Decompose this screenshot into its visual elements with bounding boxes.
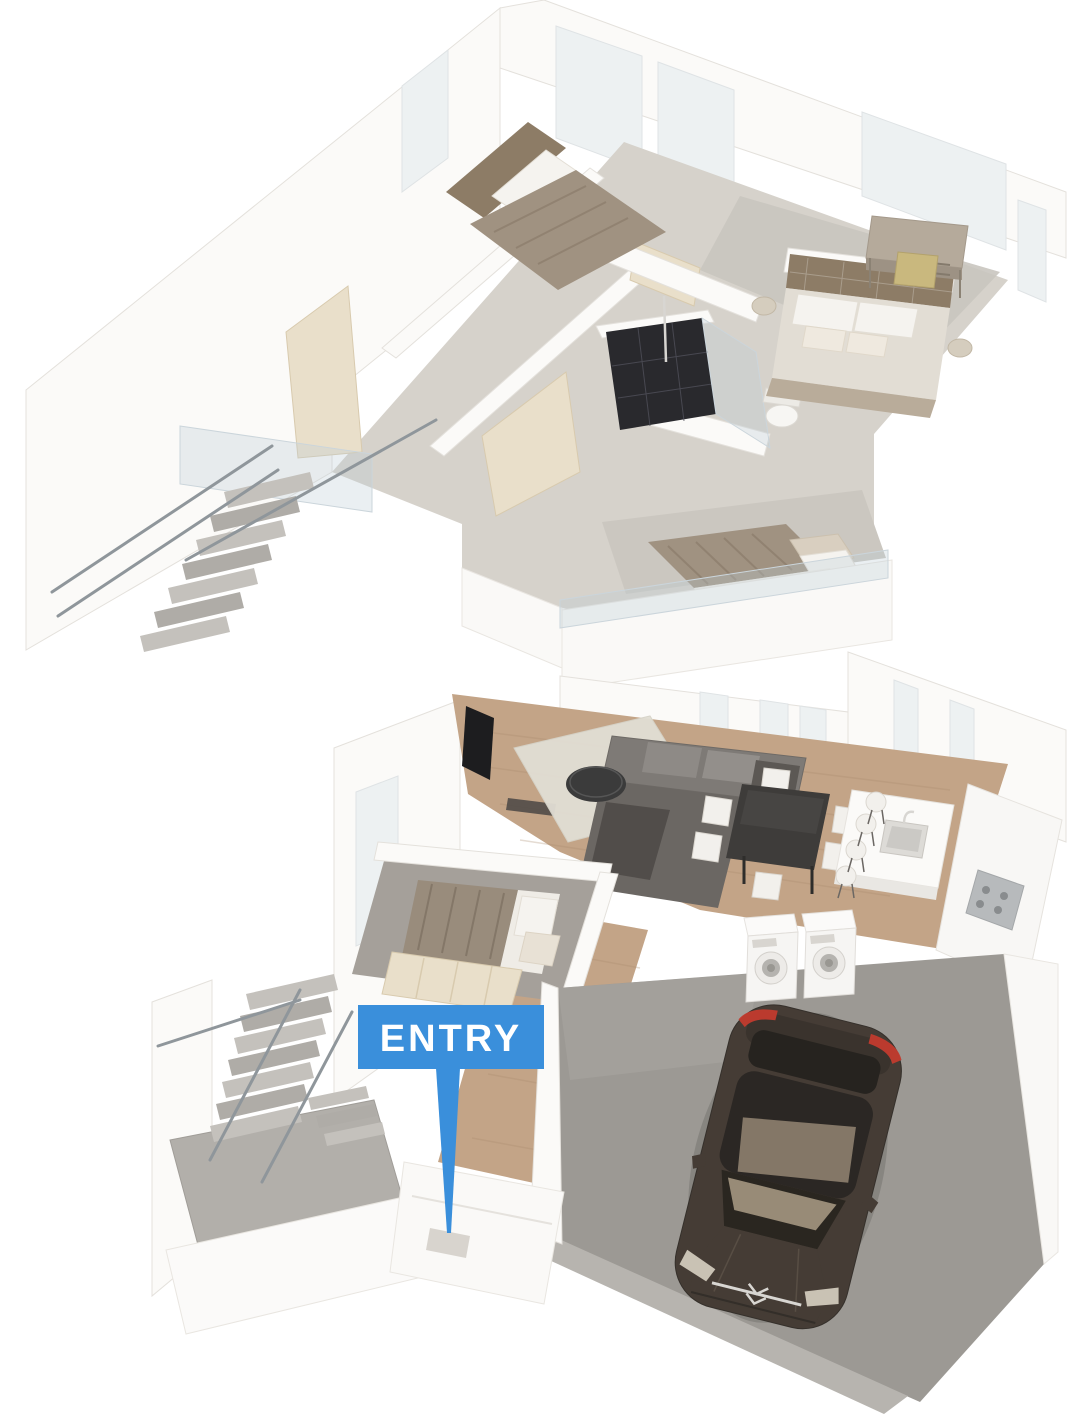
dining-chair bbox=[752, 872, 782, 900]
pillow bbox=[519, 932, 560, 966]
dryer bbox=[802, 910, 856, 998]
floorplan-3d: ENTRY bbox=[0, 0, 1080, 1417]
accent-pillow bbox=[846, 332, 888, 357]
duvet bbox=[402, 880, 518, 968]
entry-label: ENTRY bbox=[380, 1018, 522, 1060]
accent-pillow bbox=[802, 326, 846, 352]
window bbox=[1018, 200, 1046, 302]
floorplan-stage: ENTRY bbox=[0, 0, 1080, 1417]
desk-chair bbox=[894, 252, 938, 288]
sofa-cushion bbox=[642, 742, 702, 778]
sofa-cushion bbox=[702, 750, 760, 784]
dining-chair bbox=[702, 796, 732, 826]
bar-stool bbox=[866, 792, 886, 812]
washing-machine bbox=[744, 914, 798, 1002]
bar-stool bbox=[836, 866, 856, 886]
bedside-stool bbox=[752, 297, 776, 315]
dining-chair bbox=[692, 832, 722, 862]
bar-stool bbox=[846, 840, 866, 860]
bar-stool bbox=[856, 814, 876, 834]
coffee-table bbox=[566, 766, 626, 802]
bedside-stool bbox=[948, 339, 972, 357]
pillow bbox=[854, 302, 918, 338]
